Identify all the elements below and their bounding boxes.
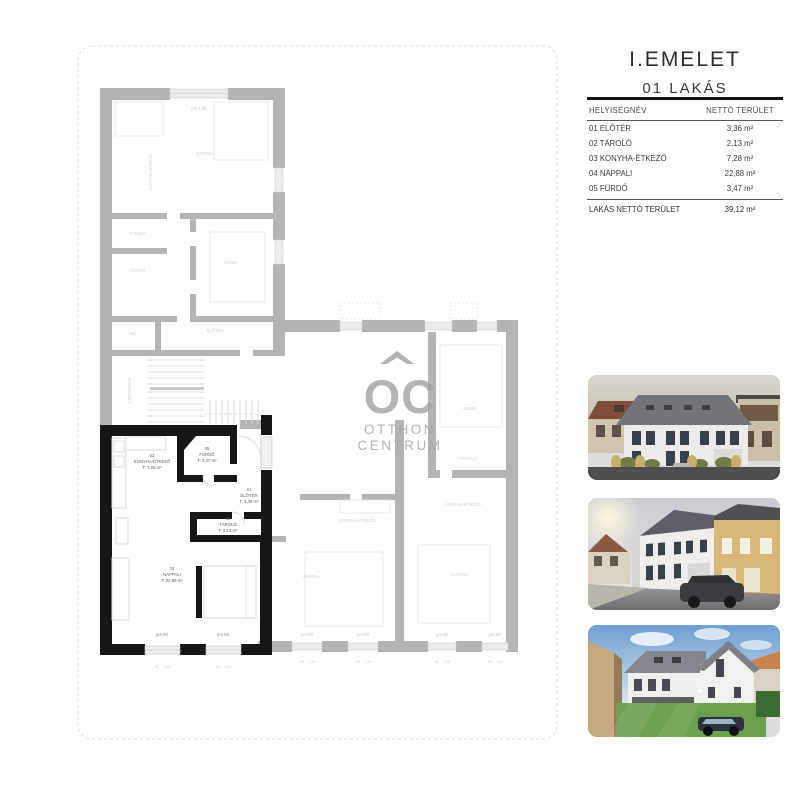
room-num: 03 (150, 453, 155, 458)
room-label: WC (130, 331, 137, 336)
room-num: 02 (226, 516, 231, 521)
room-name: ELŐTÉR (240, 493, 257, 498)
room-name: 03 KONYHA-ÉTKEZŐ (587, 154, 697, 163)
room-area: T: 2,13 m² (218, 528, 238, 533)
floor-plan: NAPPALI KONYHA-ÉTKEZŐ TÁROLÓ FÜRDŐ SZOBA… (0, 0, 570, 800)
window-dim: 90 (300, 660, 304, 664)
window-dim: 1,50 (365, 660, 372, 664)
room-label: SZOBA (463, 406, 477, 411)
room-name: KONYHA-ÉTKEZŐ (134, 459, 171, 464)
room-name: FÜRDŐ (199, 452, 215, 457)
gray-window-labels: pm 1,50 pm 90 pm 90 pm 90 pm 90 90 1,50 … (191, 106, 503, 664)
room-label: KONYHA-ÉTKEZŐ (148, 153, 153, 190)
table-row: 05 FÜRDŐ 3,47 m² (587, 181, 783, 196)
window-label: pm 90 (357, 632, 370, 637)
room-area-table: HELYISÉGNÉV NETTÓ TERÜLET 01 ELŐTÉR 3,36… (587, 97, 783, 219)
total-value: 39,12 m² (697, 205, 783, 214)
room-label: KONYHA-ÉTKEZŐ (339, 518, 376, 523)
gray-walls (100, 88, 518, 652)
apartment-subtitle: 01 LAKÁS (587, 80, 783, 97)
total-label: LAKÁS NETTÓ TERÜLET (587, 205, 697, 214)
room-label: LÉPCSŐHÁZ (127, 377, 132, 403)
room-label: TÁROLÓ (129, 231, 147, 236)
room-area: T: 3,47 m² (197, 458, 217, 463)
room-area: T: 22,88 m² (161, 578, 183, 583)
room-num: 01 (247, 487, 252, 492)
window-dim: 90 (488, 660, 492, 664)
logo-oc: OC (364, 370, 437, 423)
window-dim: 90 (435, 660, 439, 664)
render-photo-street (588, 498, 780, 610)
logo-otthon: OTTHON (364, 422, 436, 437)
room-area: 7,28 m² (697, 154, 783, 163)
room-name: 04 NAPPALI (587, 169, 697, 178)
room-label: KONYHA-ÉTKEZŐ (445, 502, 482, 507)
window-dim: 90 (356, 660, 360, 664)
room-area: 3,47 m² (697, 184, 783, 193)
room-name: 01 ELŐTÉR (587, 124, 697, 133)
room-area: T: 3,36 m² (239, 499, 259, 504)
window-dim: 1,50 (497, 660, 504, 664)
room-label: NAPPALI (303, 574, 320, 579)
room-label: TÁROLÓ (459, 456, 477, 461)
table-row: 01 ELŐTÉR 3,36 m² (587, 121, 783, 136)
table-row: 03 KONYHA-ÉTKEZŐ 7,28 m² (587, 151, 783, 166)
window-label: pm 1,50 (191, 106, 207, 111)
room-label: ELŐTÉR (207, 328, 224, 333)
table-total-row: LAKÁS NETTÓ TERÜLET 39,12 m² (587, 200, 783, 219)
col-net-area: NETTÓ TERÜLET (697, 106, 783, 115)
window-label: pm 90 (217, 632, 230, 637)
room-label: SZOBA (224, 260, 238, 265)
room-name: NAPPALI (163, 572, 181, 577)
room-area: 2,13 m² (697, 139, 783, 148)
room-area: 3,36 m² (697, 124, 783, 133)
room-name: TÁROLÓ (219, 522, 237, 527)
logo-centrum: CENTRUM (358, 438, 443, 453)
render-photo-courtyard (588, 625, 780, 737)
render-photo-front (588, 375, 780, 480)
window-label: pm 90 (436, 632, 449, 637)
room-num: 05 (205, 446, 210, 451)
room-label: FÜRDŐ (131, 268, 147, 273)
table-header: HELYISÉGNÉV NETTÓ TERÜLET (587, 100, 783, 121)
window-dim: 1,50 (444, 660, 451, 664)
table-row: 04 NAPPALI 22,88 m² (587, 166, 783, 181)
col-room-name: HELYISÉGNÉV (587, 106, 697, 115)
window-label: pm 90 (489, 632, 502, 637)
room-area: 22,88 m² (697, 169, 783, 178)
window-label: pm 90 (301, 632, 314, 637)
room-num: 04 (170, 566, 175, 571)
room-area: T: 7,28 m² (142, 465, 162, 470)
window-label: pm 90 (156, 632, 169, 637)
room-name: 05 FÜRDŐ (587, 184, 697, 193)
room-name: 02 TÁROLÓ (587, 139, 697, 148)
window-dim: 90 (155, 665, 159, 669)
window-dim: 1,50 (309, 660, 316, 664)
window-dim: 90 (216, 665, 220, 669)
logo-caret (380, 351, 414, 364)
window-dim: 1,50 (225, 665, 232, 669)
highlight-apartment-details (112, 436, 272, 654)
room-label: NAPPALI (196, 151, 213, 156)
room-label: NAPPALI (451, 572, 468, 577)
page-title: I.EMELET (587, 48, 783, 72)
table-row: 02 TÁROLÓ 2,13 m² (587, 136, 783, 151)
window-dim: 1,50 (164, 665, 171, 669)
